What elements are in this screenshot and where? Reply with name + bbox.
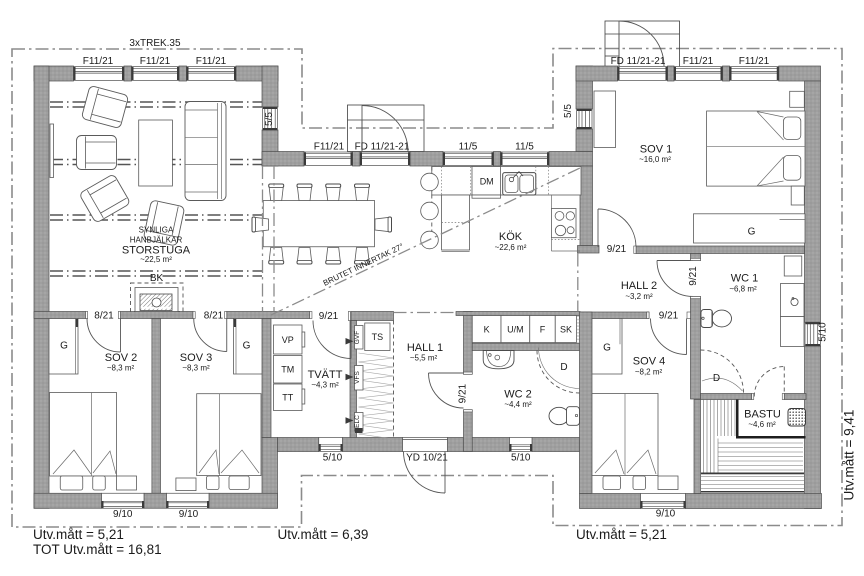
svg-text:~22,6 m²: ~22,6 m² xyxy=(495,243,527,252)
svg-text:FD 11/21-21: FD 11/21-21 xyxy=(611,56,666,67)
svg-text:WC 2: WC 2 xyxy=(504,389,532,401)
svg-text:8/21: 8/21 xyxy=(204,311,224,322)
svg-text:~16,0 m²: ~16,0 m² xyxy=(639,155,671,164)
svg-text:G: G xyxy=(60,341,68,352)
svg-text:D: D xyxy=(713,373,720,384)
svg-text:D: D xyxy=(560,362,567,373)
svg-text:~4,4 m²: ~4,4 m² xyxy=(504,400,532,409)
svg-text:~8,3 m²: ~8,3 m² xyxy=(182,364,210,373)
svg-text:Utv.mått = 6,39: Utv.mått = 6,39 xyxy=(278,527,369,542)
svg-text:Utv.mått = 9,41: Utv.mått = 9,41 xyxy=(842,410,857,501)
svg-text:ELC: ELC xyxy=(354,415,361,428)
svg-text:5/10: 5/10 xyxy=(323,453,343,464)
svg-text:~4,3 m²: ~4,3 m² xyxy=(311,381,339,390)
svg-text:FD 11/21-21: FD 11/21-21 xyxy=(355,142,410,153)
svg-text:K: K xyxy=(484,325,490,335)
svg-text:F11/21: F11/21 xyxy=(140,56,171,67)
svg-text:HANBJÄLKAR: HANBJÄLKAR xyxy=(130,236,183,245)
svg-text:KÖK: KÖK xyxy=(499,231,523,243)
svg-text:TT: TT xyxy=(282,393,293,403)
svg-text:~22,5 m²: ~22,5 m² xyxy=(140,255,172,264)
svg-text:U/M: U/M xyxy=(507,325,524,335)
svg-text:G: G xyxy=(603,343,611,354)
svg-text:8/21: 8/21 xyxy=(94,311,114,322)
svg-text:F11/21: F11/21 xyxy=(314,142,345,153)
svg-text:~8,3 m²: ~8,3 m² xyxy=(107,364,135,373)
svg-text:5/5: 5/5 xyxy=(563,104,574,118)
svg-text:GVF: GVF xyxy=(354,331,361,344)
svg-text:Utv.mått = 5,21: Utv.mått = 5,21 xyxy=(576,527,667,542)
svg-text:9/10: 9/10 xyxy=(113,509,133,520)
svg-text:~6,8 m²: ~6,8 m² xyxy=(729,285,757,294)
svg-text:YD 10/21: YD 10/21 xyxy=(406,453,448,464)
svg-text:HALL 1: HALL 1 xyxy=(407,342,443,354)
svg-text:11/5: 11/5 xyxy=(515,142,534,153)
svg-text:9/10: 9/10 xyxy=(179,509,199,520)
svg-text:~8,2 m²: ~8,2 m² xyxy=(635,368,663,377)
svg-text:VFS: VFS xyxy=(354,371,361,384)
svg-text:BASTU: BASTU xyxy=(744,409,781,421)
svg-text:9/21: 9/21 xyxy=(659,311,679,322)
svg-text:SYNLIGA: SYNLIGA xyxy=(139,226,174,235)
svg-text:~3,2 m²: ~3,2 m² xyxy=(625,292,653,301)
svg-text:9/10: 9/10 xyxy=(656,509,676,520)
svg-text:9/21: 9/21 xyxy=(607,244,627,255)
svg-text:9/21: 9/21 xyxy=(458,383,469,403)
svg-text:Utv.mått = 5,21: Utv.mått = 5,21 xyxy=(33,527,124,542)
svg-text:F11/21: F11/21 xyxy=(739,56,770,67)
svg-text:~4,6 m²: ~4,6 m² xyxy=(748,420,776,429)
svg-text:TVÄTT: TVÄTT xyxy=(308,369,343,381)
svg-text:SOV 2: SOV 2 xyxy=(105,352,137,364)
svg-text:TM: TM xyxy=(281,365,294,375)
svg-text:G: G xyxy=(243,341,251,352)
svg-text:VP: VP xyxy=(282,335,294,345)
svg-text:SOV 4: SOV 4 xyxy=(633,356,665,368)
svg-text:11/5: 11/5 xyxy=(459,142,478,153)
svg-text:G: G xyxy=(748,227,756,238)
svg-text:HALL 2: HALL 2 xyxy=(621,280,657,292)
svg-text:F11/21: F11/21 xyxy=(196,56,227,67)
svg-text:BK: BK xyxy=(150,273,164,284)
svg-text:5/10: 5/10 xyxy=(511,453,531,464)
svg-text:SOV 1: SOV 1 xyxy=(640,144,672,156)
svg-text:~5,5 m²: ~5,5 m² xyxy=(410,354,438,363)
svg-text:9/21: 9/21 xyxy=(688,266,699,286)
svg-text:TS: TS xyxy=(372,332,384,342)
svg-text:F11/21: F11/21 xyxy=(83,56,114,67)
svg-text:F: F xyxy=(540,325,546,335)
svg-text:TOT Utv.mått = 16,81: TOT Utv.mått = 16,81 xyxy=(33,542,162,557)
svg-text:SOV 3: SOV 3 xyxy=(180,352,212,364)
svg-text:5/10: 5/10 xyxy=(818,322,829,342)
svg-text:9/21: 9/21 xyxy=(319,311,339,322)
svg-text:WC 1: WC 1 xyxy=(731,273,759,285)
svg-text:3xTREK.35: 3xTREK.35 xyxy=(129,38,181,49)
svg-text:F11/21: F11/21 xyxy=(683,56,714,67)
svg-text:5/5: 5/5 xyxy=(264,112,275,126)
svg-text:SK: SK xyxy=(560,325,572,335)
svg-text:DM: DM xyxy=(480,177,494,187)
